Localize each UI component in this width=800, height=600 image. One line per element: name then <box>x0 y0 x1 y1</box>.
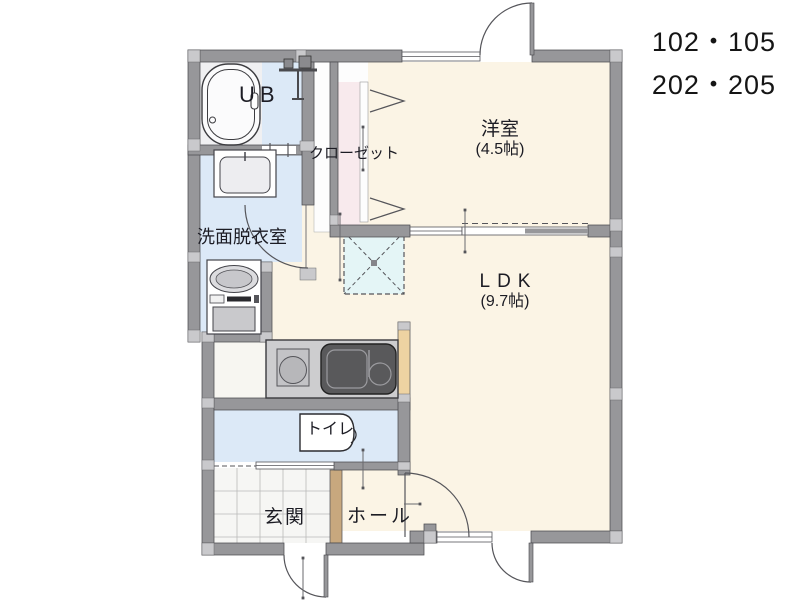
entrance-door <box>284 555 328 597</box>
western-room-door <box>480 3 534 55</box>
closet-top <box>338 62 368 82</box>
washroom-label: 洗面脱衣室 <box>197 227 287 248</box>
western-room-label: 洋室 (4.5帖) <box>430 119 570 159</box>
sink-icon <box>321 344 396 394</box>
ldk-name: LDK <box>442 271 575 293</box>
western-room-name: 洋室 <box>430 119 570 141</box>
hall-label: ホール <box>347 506 413 528</box>
toilet-label: トイレ <box>306 421 354 439</box>
ldk-exterior-door <box>492 543 533 582</box>
kitchen-side-panel <box>398 322 410 398</box>
closet-label: クローゼット <box>309 145 399 162</box>
washing-machine-icon <box>207 260 261 334</box>
entrance-tile-floor <box>214 468 330 543</box>
unit-bath-label: UB <box>239 82 280 107</box>
entrance-label: 玄関 <box>264 507 306 529</box>
stove-icon <box>277 349 309 386</box>
washbasin-icon <box>214 150 276 197</box>
ldk-size: (9.7帖) <box>435 293 575 311</box>
kitchen-counter <box>266 340 398 398</box>
unit-numbers-line2: 202・205 <box>652 63 776 102</box>
western-room-size: (4.5帖) <box>430 141 570 159</box>
unit-numbers-line1: 102・105 <box>652 20 776 59</box>
entrance-step <box>330 470 342 543</box>
toilet-sliding-door <box>214 462 334 469</box>
floor-plan: 102・105 202・205 洋室 (4.5帖) LDK (9.7帖) 洗面脱… <box>0 0 800 600</box>
ldk-label: LDK (9.7帖) <box>435 271 575 311</box>
refrigerator-space <box>344 232 404 294</box>
